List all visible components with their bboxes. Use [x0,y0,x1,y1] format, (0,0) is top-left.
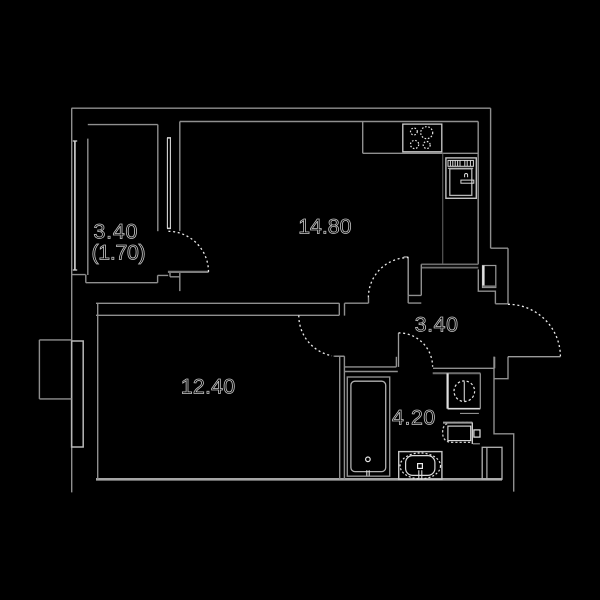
svg-text:4.20: 4.20 [392,406,436,430]
svg-text:12.40: 12.40 [181,374,236,398]
svg-text:3.40: 3.40 [415,313,459,337]
svg-text:14.80: 14.80 [298,215,351,239]
svg-text:(1.70): (1.70) [92,241,146,265]
